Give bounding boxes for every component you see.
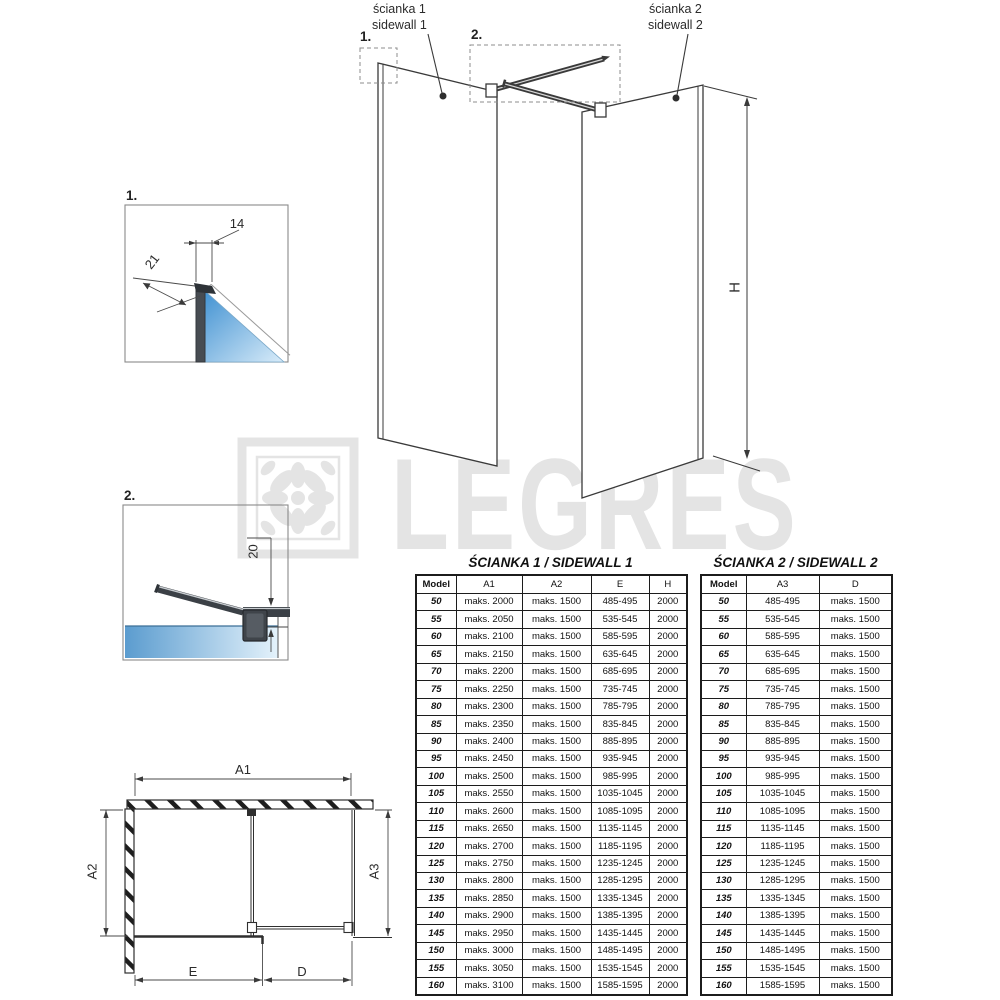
table-row: 90maks. 2400maks. 1500885-8952000 — [416, 733, 687, 750]
table-cell: 1435-1445 — [591, 925, 649, 942]
table-cell: 90 — [416, 733, 456, 750]
table-cell: 2000 — [649, 890, 687, 907]
table-row: 85835-845maks. 1500 — [701, 716, 892, 733]
table-cell: maks. 2150 — [456, 646, 522, 663]
detail1-marker: 1. — [126, 188, 137, 203]
table-row: 55535-545maks. 1500 — [701, 611, 892, 628]
table-header-row: ModelA3D — [701, 575, 892, 594]
table-cell: 885-895 — [591, 733, 649, 750]
table-cell: 95 — [701, 750, 746, 767]
table-cell: 2000 — [649, 960, 687, 977]
table-cell: 2000 — [649, 768, 687, 785]
table-row: 50485-495maks. 1500 — [701, 594, 892, 611]
table-cell: maks. 1500 — [819, 873, 892, 890]
table-cell: 1135-1145 — [746, 820, 819, 837]
table-cell: maks. 1500 — [819, 942, 892, 959]
table-cell: maks. 1500 — [522, 820, 591, 837]
table-cell: 585-595 — [591, 628, 649, 645]
table-cell: 2000 — [649, 663, 687, 680]
table-cell: maks. 1500 — [522, 733, 591, 750]
table-row: 1251235-1245maks. 1500 — [701, 855, 892, 872]
table-cell: maks. 1500 — [819, 698, 892, 715]
column-header: E — [591, 575, 649, 594]
detail2-marker: 2. — [124, 488, 135, 503]
table-cell: 535-545 — [746, 611, 819, 628]
table-cell: maks. 2100 — [456, 628, 522, 645]
table-cell: 1585-1595 — [746, 977, 819, 995]
table-cell: 1035-1045 — [591, 785, 649, 802]
table-cell: 1485-1495 — [591, 942, 649, 959]
table-cell: maks. 1500 — [522, 750, 591, 767]
table-row: 1101085-1095maks. 1500 — [701, 803, 892, 820]
table-cell: 125 — [416, 855, 456, 872]
table-cell: 535-545 — [591, 611, 649, 628]
table-row: 95maks. 2450maks. 1500935-9452000 — [416, 750, 687, 767]
plan-wall-left — [125, 809, 134, 973]
plan-dim-a2 — [100, 810, 128, 936]
table-cell: maks. 1500 — [522, 646, 591, 663]
bar-bracket-sidewall2 — [595, 103, 606, 117]
table-cell: 1135-1145 — [591, 820, 649, 837]
table-row: 120maks. 2700maks. 15001185-11952000 — [416, 838, 687, 855]
table-row: 125maks. 2750maks. 15001235-12452000 — [416, 855, 687, 872]
table-cell: 935-945 — [591, 750, 649, 767]
column-header: A3 — [746, 575, 819, 594]
table-cell: 115 — [416, 820, 456, 837]
table-cell: 785-795 — [746, 698, 819, 715]
table-cell: 70 — [701, 663, 746, 680]
table-cell: 635-645 — [591, 646, 649, 663]
table-cell: 105 — [701, 785, 746, 802]
column-header: D — [819, 575, 892, 594]
table-cell: 1285-1295 — [746, 873, 819, 890]
table-cell: 835-845 — [591, 716, 649, 733]
table-cell: maks. 1500 — [819, 663, 892, 680]
table-header-row: ModelA1A2EH — [416, 575, 687, 594]
table-cell: maks. 1500 — [819, 803, 892, 820]
table-cell: maks. 2550 — [456, 785, 522, 802]
table-row: 90885-895maks. 1500 — [701, 733, 892, 750]
table-cell: 2000 — [649, 733, 687, 750]
table-cell: 485-495 — [591, 594, 649, 611]
table-cell: 2000 — [649, 594, 687, 611]
table-cell: maks. 1500 — [819, 925, 892, 942]
table-cell: maks. 1500 — [522, 960, 591, 977]
table-row: 145maks. 2950maks. 15001435-14452000 — [416, 925, 687, 942]
table-cell: 140 — [701, 907, 746, 924]
table-cell: maks. 2750 — [456, 855, 522, 872]
table-cell: 110 — [416, 803, 456, 820]
table-cell: 1535-1545 — [746, 960, 819, 977]
table-cell: maks. 1500 — [522, 977, 591, 995]
sidewall2-label-pl: ścianka 2 — [648, 1, 703, 17]
bar-bracket-sidewall1 — [486, 84, 497, 97]
plan-wall-top — [127, 800, 373, 809]
table-cell: maks. 1500 — [522, 628, 591, 645]
column-header: A2 — [522, 575, 591, 594]
table-cell: maks. 1500 — [819, 977, 892, 995]
dim-label-h: H — [727, 273, 744, 303]
table-row: 1451435-1445maks. 1500 — [701, 925, 892, 942]
table-cell: 2000 — [649, 907, 687, 924]
table-cell: 80 — [701, 698, 746, 715]
table-cell: 120 — [416, 838, 456, 855]
table-cell: 1435-1445 — [746, 925, 819, 942]
table-cell: 1035-1045 — [746, 785, 819, 802]
table-cell: 160 — [416, 977, 456, 995]
table-row: 75735-745maks. 1500 — [701, 681, 892, 698]
table-cell: 150 — [701, 942, 746, 959]
table-cell: maks. 2850 — [456, 890, 522, 907]
table-cell: maks. 2350 — [456, 716, 522, 733]
plan-sidewall2 — [352, 810, 355, 936]
table-cell: 135 — [701, 890, 746, 907]
table-cell: 80 — [416, 698, 456, 715]
table-cell: 115 — [701, 820, 746, 837]
table-cell: 60 — [416, 628, 456, 645]
perspective-view — [360, 34, 760, 498]
table-cell: 985-995 — [591, 768, 649, 785]
table-cell: 1235-1245 — [746, 855, 819, 872]
table-row: 1551535-1545maks. 1500 — [701, 960, 892, 977]
table-row: 80maks. 2300maks. 1500785-7952000 — [416, 698, 687, 715]
table-cell: 685-695 — [591, 663, 649, 680]
table-cell: maks. 3000 — [456, 942, 522, 959]
table-cell: 485-495 — [746, 594, 819, 611]
table-cell: 2000 — [649, 785, 687, 802]
table-cell: maks. 1500 — [819, 594, 892, 611]
table-cell: 935-945 — [746, 750, 819, 767]
dim-14-lines — [184, 230, 239, 282]
table-cell: 50 — [416, 594, 456, 611]
table-cell: maks. 1500 — [819, 750, 892, 767]
table-cell: maks. 1500 — [522, 611, 591, 628]
sidewall2-label-en: sidewall 2 — [648, 17, 703, 33]
table-cell: 135 — [416, 890, 456, 907]
table-cell: 1285-1295 — [591, 873, 649, 890]
table-cell: maks. 1500 — [819, 681, 892, 698]
table-cell: 120 — [701, 838, 746, 855]
table-cell: maks. 2050 — [456, 611, 522, 628]
table-cell: 130 — [416, 873, 456, 890]
table-row: 1501485-1495maks. 1500 — [701, 942, 892, 959]
table-row: 1601585-1595maks. 1500 — [701, 977, 892, 995]
table-cell: maks. 2900 — [456, 907, 522, 924]
table-cell: 1085-1095 — [746, 803, 819, 820]
table-cell: maks. 1500 — [819, 611, 892, 628]
sidewall1-table-title: ŚCIANKA 1 / SIDEWALL 1 — [415, 555, 686, 570]
table-row: 55maks. 2050maks. 1500535-5452000 — [416, 611, 687, 628]
table-cell: maks. 1500 — [522, 716, 591, 733]
table-row: 60585-595maks. 1500 — [701, 628, 892, 645]
table-cell: 635-645 — [746, 646, 819, 663]
table-cell: maks. 1500 — [522, 907, 591, 924]
table-cell: 2000 — [649, 646, 687, 663]
table-cell: 125 — [701, 855, 746, 872]
table-cell: maks. 1500 — [522, 698, 591, 715]
table-row: 1301285-1295maks. 1500 — [701, 873, 892, 890]
table-row: 70685-695maks. 1500 — [701, 663, 892, 680]
table-row: 150maks. 3000maks. 15001485-14952000 — [416, 942, 687, 959]
table-row: 160maks. 3100maks. 15001585-15952000 — [416, 977, 687, 995]
sidewall1-panel — [378, 63, 497, 466]
table-row: 1401385-1395maks. 1500 — [701, 907, 892, 924]
table-row: 110maks. 2600maks. 15001085-10952000 — [416, 803, 687, 820]
dim-label-a3: A3 — [367, 857, 382, 887]
table-cell: maks. 3050 — [456, 960, 522, 977]
table-cell: 2000 — [649, 873, 687, 890]
table-cell: 2000 — [649, 855, 687, 872]
table-cell: 1335-1345 — [746, 890, 819, 907]
table-cell: maks. 1500 — [522, 925, 591, 942]
table-cell: 140 — [416, 907, 456, 924]
table-row: 65635-645maks. 1500 — [701, 646, 892, 663]
table-cell: 75 — [701, 681, 746, 698]
table-row: 50maks. 2000maks. 1500485-4952000 — [416, 594, 687, 611]
table-cell: 145 — [416, 925, 456, 942]
table-cell: maks. 1500 — [819, 960, 892, 977]
sidewall2-table-title: ŚCIANKA 2 / SIDEWALL 2 — [700, 555, 891, 570]
table-row: 100985-995maks. 1500 — [701, 768, 892, 785]
table-cell: maks. 1500 — [522, 785, 591, 802]
dim-label-d: D — [287, 964, 317, 979]
table-cell: maks. 1500 — [819, 890, 892, 907]
table-cell: maks. 1500 — [819, 646, 892, 663]
table-cell: maks. 1500 — [819, 628, 892, 645]
table-cell: maks. 1500 — [819, 855, 892, 872]
dim-label-e: E — [178, 964, 208, 979]
detail2-marker-3d: 2. — [471, 27, 482, 42]
table-cell: maks. 2600 — [456, 803, 522, 820]
table-cell: 1185-1195 — [746, 838, 819, 855]
table-cell: 2000 — [649, 698, 687, 715]
table-row: 95935-945maks. 1500 — [701, 750, 892, 767]
table-cell: maks. 2000 — [456, 594, 522, 611]
table-cell: 50 — [701, 594, 746, 611]
table-cell: 1485-1495 — [746, 942, 819, 959]
table-cell: 60 — [701, 628, 746, 645]
table-cell: 75 — [416, 681, 456, 698]
table-cell: 2000 — [649, 925, 687, 942]
table-cell: 155 — [416, 960, 456, 977]
table-cell: 585-595 — [746, 628, 819, 645]
table-cell: 150 — [416, 942, 456, 959]
table-cell: 95 — [416, 750, 456, 767]
table-row: 1051035-1045maks. 1500 — [701, 785, 892, 802]
sidewall1-table: ModelA1A2EH50maks. 2000maks. 1500485-495… — [415, 574, 688, 996]
table-cell: 1235-1245 — [591, 855, 649, 872]
sidewall1-label-en: sidewall 1 — [372, 17, 427, 33]
table-cell: 735-745 — [591, 681, 649, 698]
table-cell: 1385-1395 — [746, 907, 819, 924]
table-cell: maks. 2400 — [456, 733, 522, 750]
table-cell: maks. 2500 — [456, 768, 522, 785]
table-row: 130maks. 2800maks. 15001285-12952000 — [416, 873, 687, 890]
table-cell: maks. 3100 — [456, 977, 522, 995]
table-cell: 1385-1395 — [591, 907, 649, 924]
sidewall1-label: ścianka 1 sidewall 1 — [372, 1, 427, 33]
table-cell: 2000 — [649, 716, 687, 733]
detail1-drawing — [125, 205, 290, 362]
table-cell: 2000 — [649, 803, 687, 820]
table-cell: maks. 2700 — [456, 838, 522, 855]
table-cell: 65 — [416, 646, 456, 663]
table-cell: maks. 2800 — [456, 873, 522, 890]
table-cell: maks. 1500 — [819, 733, 892, 750]
technical-drawing-page: LEGRES — [0, 0, 1000, 1000]
table-cell: 55 — [701, 611, 746, 628]
plan-sidewall1 — [247, 809, 256, 936]
table-row: 85maks. 2350maks. 1500835-8452000 — [416, 716, 687, 733]
table-row: 75maks. 2250maks. 1500735-7452000 — [416, 681, 687, 698]
table-cell: 130 — [701, 873, 746, 890]
table-cell: 785-795 — [591, 698, 649, 715]
table-cell: 1085-1095 — [591, 803, 649, 820]
table-cell: maks. 1500 — [819, 820, 892, 837]
table-row: 1201185-1195maks. 1500 — [701, 838, 892, 855]
table-row: 65maks. 2150maks. 1500635-6452000 — [416, 646, 687, 663]
dim-label-14: 14 — [222, 216, 252, 231]
table-cell: 85 — [416, 716, 456, 733]
dim-21-lines — [133, 278, 200, 312]
table-row: 1151135-1145maks. 1500 — [701, 820, 892, 837]
table-cell: maks. 1500 — [522, 681, 591, 698]
table-cell: 85 — [701, 716, 746, 733]
table-cell: maks. 2450 — [456, 750, 522, 767]
table-cell: maks. 1500 — [522, 663, 591, 680]
column-header: A1 — [456, 575, 522, 594]
table-cell: maks. 2950 — [456, 925, 522, 942]
table-cell: 100 — [416, 768, 456, 785]
table-cell: 1335-1345 — [591, 890, 649, 907]
table-row: 60maks. 2100maks. 1500585-5952000 — [416, 628, 687, 645]
table-cell: 735-745 — [746, 681, 819, 698]
table-cell: 1535-1545 — [591, 960, 649, 977]
table-cell: 55 — [416, 611, 456, 628]
table-cell: maks. 1500 — [819, 838, 892, 855]
table-row: 105maks. 2550maks. 15001035-10452000 — [416, 785, 687, 802]
sidewall2-table: ModelA3D50485-495maks. 150055535-545maks… — [700, 574, 893, 996]
table-cell: maks. 2250 — [456, 681, 522, 698]
table-cell: 2000 — [649, 681, 687, 698]
dim-label-20: 20 — [246, 537, 261, 567]
detail2-drawing — [123, 505, 290, 660]
table-row: 115maks. 2650maks. 15001135-11452000 — [416, 820, 687, 837]
table-cell: maks. 1500 — [522, 838, 591, 855]
table-cell: maks. 1500 — [819, 768, 892, 785]
plan-support-bar — [248, 923, 354, 933]
table-cell: maks. 1500 — [522, 594, 591, 611]
sidewall1-label-pl: ścianka 1 — [372, 1, 427, 17]
table-cell: 2000 — [649, 611, 687, 628]
column-header: H — [649, 575, 687, 594]
sidewall2-panel — [582, 85, 703, 498]
glass-clamp-bracket — [243, 610, 267, 641]
column-header: Model — [416, 575, 456, 594]
table-cell: maks. 1500 — [522, 942, 591, 959]
table-row: 140maks. 2900maks. 15001385-13952000 — [416, 907, 687, 924]
table-cell: maks. 2300 — [456, 698, 522, 715]
table-row: 155maks. 3050maks. 15001535-15452000 — [416, 960, 687, 977]
table-cell: 685-695 — [746, 663, 819, 680]
table-cell: 155 — [701, 960, 746, 977]
table-cell: 2000 — [649, 977, 687, 995]
column-header: Model — [701, 575, 746, 594]
table-cell: maks. 1500 — [522, 890, 591, 907]
table-cell: 160 — [701, 977, 746, 995]
table-row: 1351335-1345maks. 1500 — [701, 890, 892, 907]
table-cell: maks. 1500 — [522, 873, 591, 890]
table-row: 80785-795maks. 1500 — [701, 698, 892, 715]
dim-label-a2: A2 — [85, 857, 100, 887]
table-row: 70maks. 2200maks. 1500685-6952000 — [416, 663, 687, 680]
table-cell: 110 — [701, 803, 746, 820]
table-cell: 885-895 — [746, 733, 819, 750]
table-row: 135maks. 2850maks. 15001335-13452000 — [416, 890, 687, 907]
table-cell: 835-845 — [746, 716, 819, 733]
table-cell: 2000 — [649, 942, 687, 959]
table-cell: 65 — [701, 646, 746, 663]
table-cell: maks. 2200 — [456, 663, 522, 680]
table-cell: 1585-1595 — [591, 977, 649, 995]
table-cell: 70 — [416, 663, 456, 680]
table-cell: 1185-1195 — [591, 838, 649, 855]
detail1-marker-3d: 1. — [360, 29, 371, 44]
table-cell: maks. 1500 — [819, 785, 892, 802]
table-cell: maks. 1500 — [819, 907, 892, 924]
table-cell: 985-995 — [746, 768, 819, 785]
table-cell: 2000 — [649, 750, 687, 767]
table-cell: 145 — [701, 925, 746, 942]
table-cell: 2000 — [649, 838, 687, 855]
table-cell: 105 — [416, 785, 456, 802]
table-cell: maks. 1500 — [522, 855, 591, 872]
table-cell: 2000 — [649, 820, 687, 837]
table-row: 100maks. 2500maks. 1500985-9952000 — [416, 768, 687, 785]
table-cell: maks. 2650 — [456, 820, 522, 837]
sidewall2-label: ścianka 2 sidewall 2 — [648, 1, 703, 33]
table-cell: 90 — [701, 733, 746, 750]
glass-edge — [205, 284, 290, 362]
plan-view — [100, 773, 392, 986]
table-cell: maks. 1500 — [522, 768, 591, 785]
table-cell: maks. 1500 — [522, 803, 591, 820]
dim-label-a1: A1 — [228, 762, 258, 777]
table-cell: maks. 1500 — [819, 716, 892, 733]
table-cell: 100 — [701, 768, 746, 785]
table-cell: 2000 — [649, 628, 687, 645]
